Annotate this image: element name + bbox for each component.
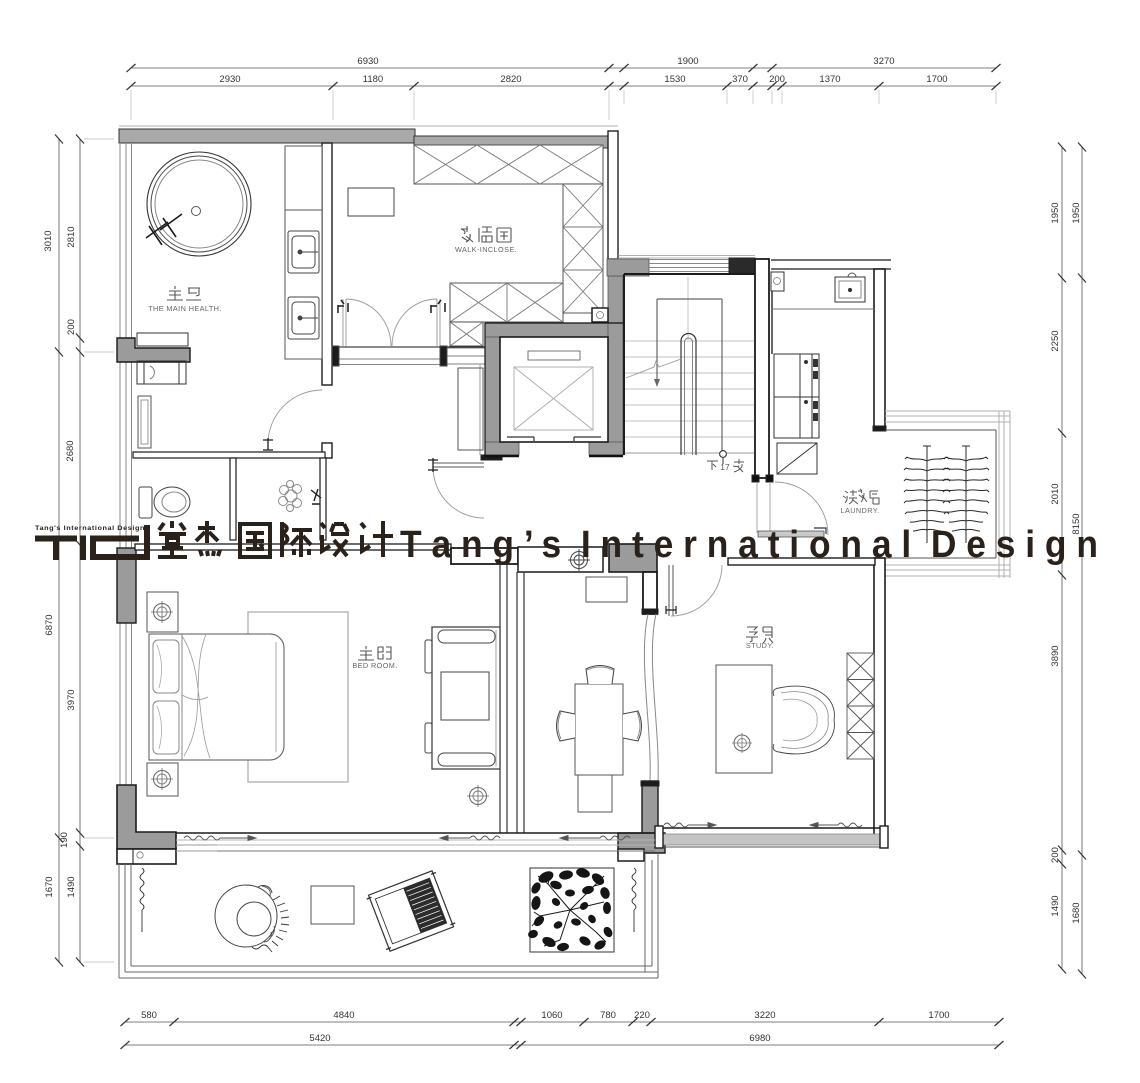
svg-text:3270: 3270	[873, 56, 894, 67]
svg-text:2810: 2810	[66, 226, 77, 247]
svg-text:1670: 1670	[44, 876, 55, 897]
svg-text:200: 200	[769, 74, 785, 85]
svg-text:2680: 2680	[65, 440, 76, 461]
svg-text:3970: 3970	[66, 689, 77, 710]
svg-text:3010: 3010	[43, 230, 54, 251]
svg-text:6930: 6930	[357, 56, 378, 67]
svg-text:17: 17	[720, 462, 730, 472]
svg-text:370: 370	[732, 74, 748, 85]
svg-text:3220: 3220	[754, 1010, 775, 1021]
svg-text:LAUNDRY.: LAUNDRY.	[840, 506, 879, 515]
svg-text:3890: 3890	[1050, 645, 1061, 666]
svg-text:190: 190	[59, 832, 70, 848]
svg-text:2250: 2250	[1050, 330, 1061, 351]
svg-text:780: 780	[600, 1010, 616, 1021]
svg-text:1700: 1700	[926, 74, 947, 85]
svg-text:200: 200	[66, 319, 77, 335]
svg-text:1900: 1900	[677, 56, 698, 67]
svg-text:220: 220	[634, 1010, 650, 1021]
svg-text:1950: 1950	[1071, 202, 1082, 223]
svg-text:2930: 2930	[219, 74, 240, 85]
svg-text:1180: 1180	[363, 74, 383, 85]
svg-text:4840: 4840	[333, 1010, 354, 1021]
svg-text:6980: 6980	[749, 1033, 770, 1044]
svg-text:6870: 6870	[44, 614, 55, 635]
svg-text:STUDY.: STUDY.	[746, 641, 774, 650]
svg-text:5420: 5420	[309, 1033, 330, 1044]
svg-text:1370: 1370	[819, 74, 840, 85]
svg-text:1490: 1490	[66, 876, 77, 897]
svg-text:1060: 1060	[541, 1010, 562, 1021]
svg-text:1700: 1700	[928, 1010, 949, 1021]
svg-text:T a n g ’ s I n t e r n a t i: T a n g ’ s I n t e r n a t i o n a l D …	[400, 524, 1098, 566]
svg-text:BED ROOM.: BED ROOM.	[352, 661, 397, 670]
svg-text:WALK-INCLOSE.: WALK-INCLOSE.	[455, 245, 517, 254]
svg-text:2010: 2010	[1050, 483, 1061, 504]
svg-text:1530: 1530	[664, 74, 685, 85]
svg-text:1950: 1950	[1050, 202, 1061, 223]
svg-text:200: 200	[1050, 847, 1061, 863]
svg-text:2820: 2820	[500, 74, 521, 85]
svg-text:1680: 1680	[1071, 902, 1082, 923]
svg-text:THE MAIN HEALTH.: THE MAIN HEALTH.	[148, 304, 222, 313]
svg-text:1490: 1490	[1050, 895, 1061, 916]
svg-text:580: 580	[141, 1010, 157, 1021]
svg-text:Tang's International Design: Tang's International Design	[35, 525, 145, 532]
